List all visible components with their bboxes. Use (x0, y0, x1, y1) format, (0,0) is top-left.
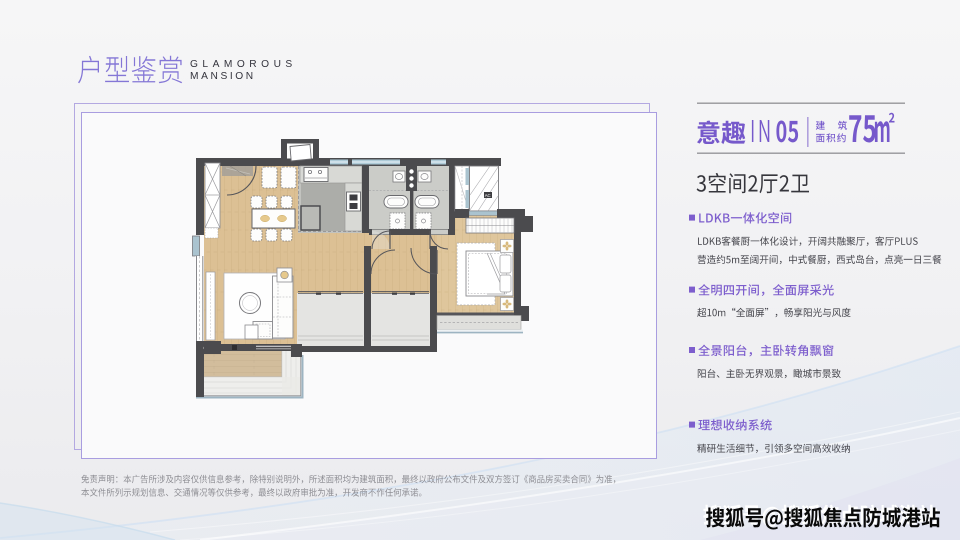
svg-text:AC: AC (485, 193, 491, 198)
svg-text:GLAMOROUS: GLAMOROUS (190, 59, 297, 70)
svg-text:MANSION: MANSION (190, 71, 256, 82)
